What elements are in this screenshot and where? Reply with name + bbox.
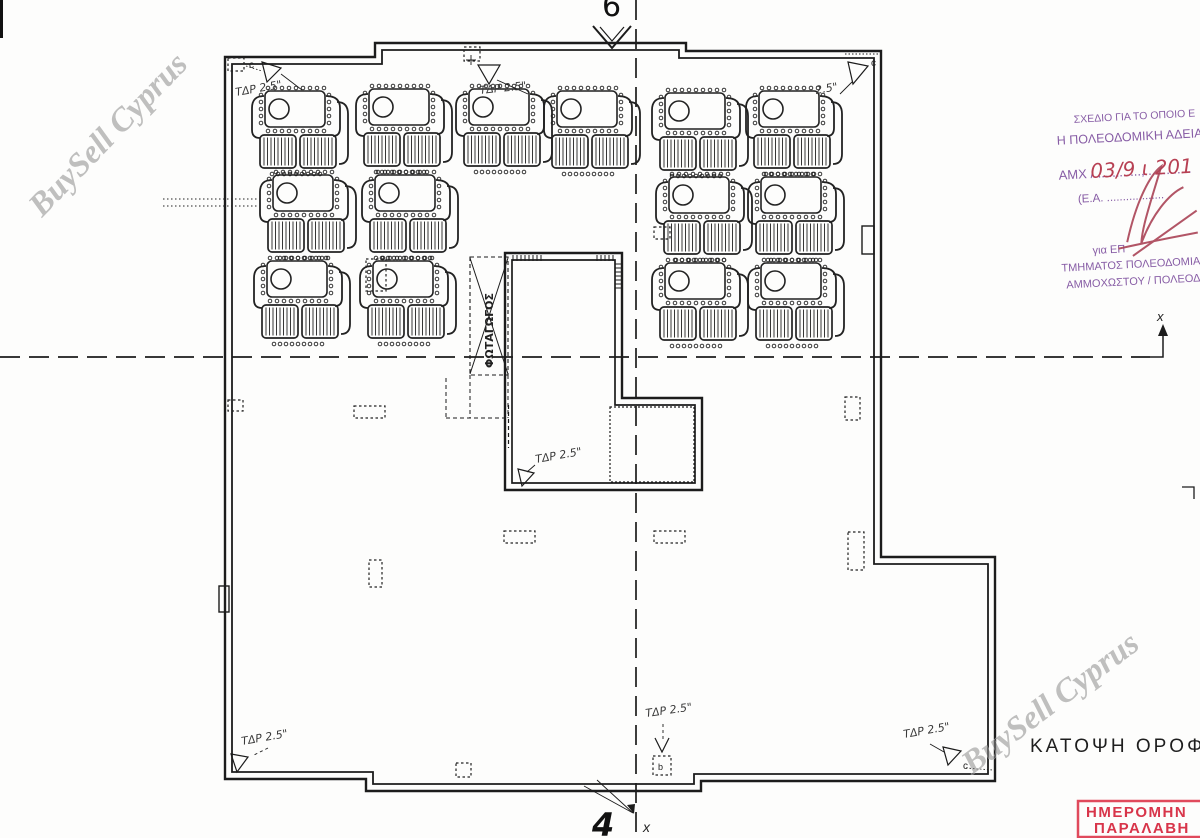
stamp-line-5: ΤΜΗΜΑΤΟΣ ΠΟΛΕΟΔΟΜΙΑ xyxy=(1061,255,1200,274)
roof-vent xyxy=(369,560,382,587)
tdp-label: ΤΔΡ 2.5" xyxy=(645,701,693,720)
receipt-stamp: ΗΜΕΡΟΜΗΝ ΠΑΡΑΛΑΒΗ xyxy=(1078,801,1200,837)
solar-water-heater-unit xyxy=(356,84,452,174)
stamp-handwritten-date: 03/9 ι 201 xyxy=(1090,154,1194,183)
solar-water-heater-unit xyxy=(544,86,640,176)
planning-stamp: ΣΧΕΔΙΟ ΓΙΑ ΤΟ ΟΠΟΙΟ Ε Η ΠΟΛΕΟΔΟΜΙΚΗ ΑΔΕΙ… xyxy=(1053,107,1200,292)
roof-vent xyxy=(654,531,685,543)
roof-vent xyxy=(228,400,243,411)
left-leader-lines xyxy=(163,199,257,206)
corner-letter-top-right: c xyxy=(871,58,876,69)
solar-water-heater-unit xyxy=(360,256,456,346)
vent-letter: b xyxy=(658,762,663,772)
solar-water-heater-unit xyxy=(746,86,842,176)
roof-vent xyxy=(848,532,864,570)
axis-arrowhead-icon xyxy=(1158,324,1168,336)
roof-vent xyxy=(456,763,471,777)
tdp-label: 2.5" xyxy=(814,80,838,97)
roof-vent xyxy=(504,531,535,543)
stamp-line-0: ΣΧΕΔΙΟ ΓΙΑ ΤΟ ΟΠΟΙΟ Ε xyxy=(1073,107,1195,125)
roof-vent xyxy=(366,259,386,291)
solar-water-heater-unit xyxy=(652,258,748,348)
solar-units-layer xyxy=(252,84,844,348)
stamp-line-1: Η ΠΟΛΕΟΔΟΜΙΚΗ ΑΔΕΙΑ xyxy=(1056,126,1200,148)
scanned-roof-plan-page: ΦΩΤΑΓΩΓΟΣ xyxy=(0,0,1200,838)
tdp-label: ΤΔΡ 2.5" xyxy=(534,445,582,466)
stamp-line-4: για ΕΠ xyxy=(1092,243,1125,257)
axis-label-right: x xyxy=(1156,309,1164,324)
section-number-bottom: 4 xyxy=(591,806,614,838)
tdp-label: ΤΔΡ 2.5" xyxy=(902,720,950,741)
tdp-labels-layer: ΤΔΡ 2.5"ΤΔΡ 2.5"2.5"ΤΔΡ 2.5"ΤΔΡ 2.5"ΤΔΡ … xyxy=(234,78,950,748)
solar-water-heater-unit xyxy=(656,172,752,262)
tdp-label: ΤΔΡ 2.5" xyxy=(234,78,282,99)
scan-artifact xyxy=(0,0,3,38)
solar-water-heater-unit xyxy=(652,88,748,178)
tdp-label: ΤΔΡ 2.5" xyxy=(479,79,527,97)
solar-water-heater-unit xyxy=(748,258,844,348)
receipt-stamp-line-1: ΗΜΕΡΟΜΗΝ xyxy=(1086,804,1187,821)
building-outline xyxy=(219,43,1194,791)
watermark-top-left: BuySell Cyprus xyxy=(21,46,195,224)
roof-vent xyxy=(845,397,860,420)
section-arrow-top-icon xyxy=(593,26,631,48)
drawing-title: ΚΑΤΟΨΗ ΟΡΟΦΗΣ xyxy=(1030,736,1200,757)
receipt-stamp-line-2: ΠΑΡΑΛΑΒΗ xyxy=(1094,820,1190,837)
solar-water-heater-unit xyxy=(254,256,350,346)
roof-vent xyxy=(354,406,385,418)
solar-water-heater-unit xyxy=(456,84,552,174)
edge-mark xyxy=(1182,487,1194,499)
section-number-top: 6 xyxy=(602,0,621,24)
solar-water-heater-unit xyxy=(362,170,458,260)
watermark-bottom-right: BuySell Cyprus xyxy=(954,625,1146,782)
wall-duct xyxy=(862,226,874,254)
centerlines xyxy=(0,0,1168,838)
stamp-line-6: ΑΜΜΟΧΩΣΤΟΥ / ΠΟΛΕΟΔ xyxy=(1066,272,1200,291)
axis-label-bottom: x xyxy=(642,819,651,835)
corner-letter-top-left: c xyxy=(249,60,254,71)
solar-water-heater-unit xyxy=(748,172,844,262)
solar-water-heater-unit xyxy=(252,86,348,176)
solar-water-heater-unit xyxy=(260,170,356,260)
void-hatch-rect xyxy=(610,407,694,482)
light-well-label: ΦΩΤΑΓΩΓΟΣ xyxy=(483,293,496,368)
roof-plan-drawing: ΦΩΤΑΓΩΓΟΣ xyxy=(0,0,1200,838)
tdp-label: ΤΔΡ 2.5" xyxy=(240,727,288,748)
